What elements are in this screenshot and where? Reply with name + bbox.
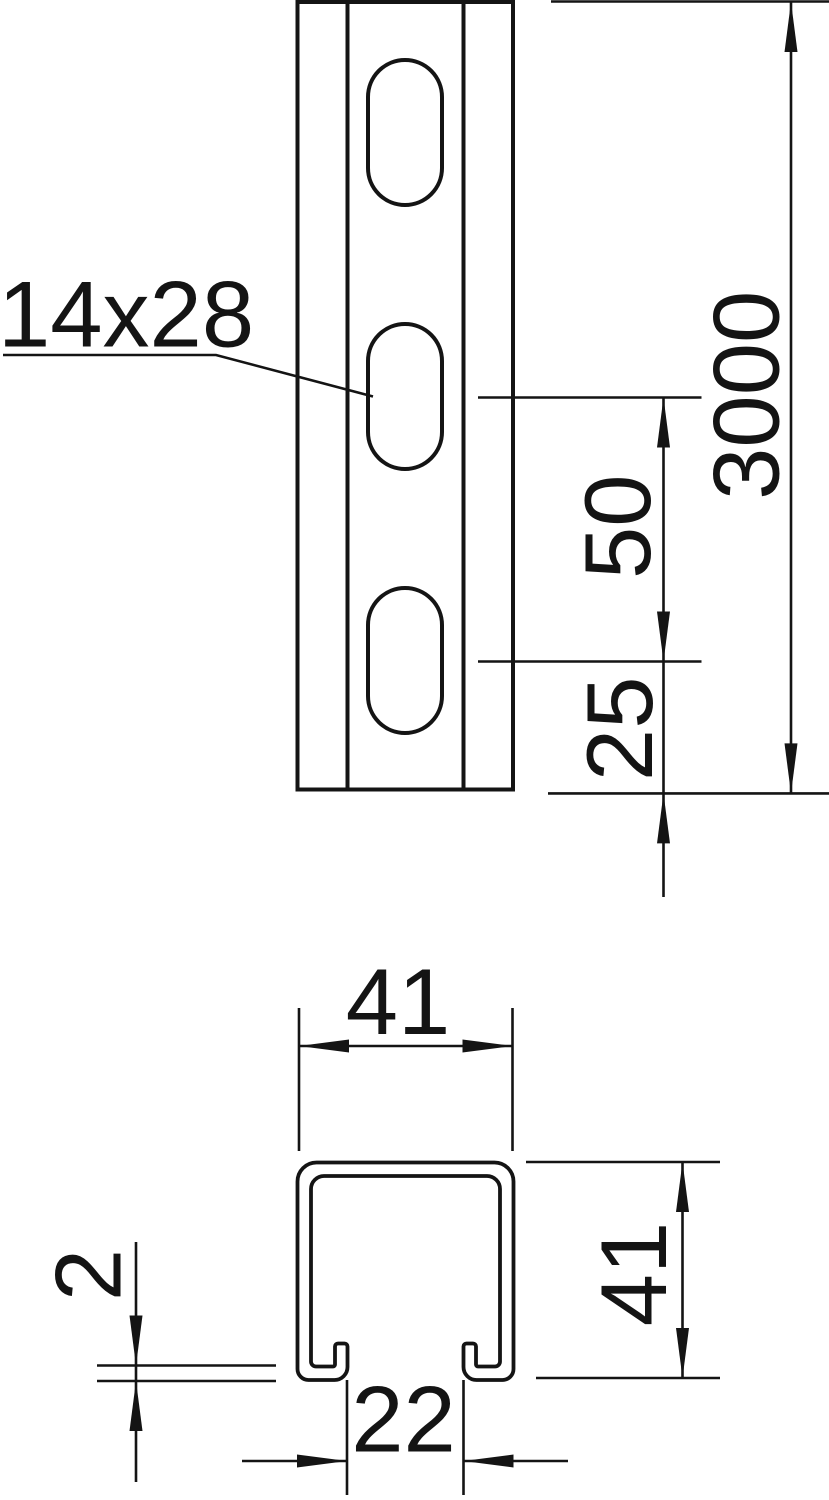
svg-text:3000: 3000 bbox=[694, 291, 799, 500]
svg-text:41: 41 bbox=[581, 1222, 686, 1327]
svg-text:14x28: 14x28 bbox=[0, 262, 254, 367]
svg-text:22: 22 bbox=[351, 1367, 456, 1472]
svg-text:25: 25 bbox=[567, 677, 672, 782]
svg-text:41: 41 bbox=[346, 949, 451, 1054]
svg-text:50: 50 bbox=[565, 474, 670, 579]
svg-text:2: 2 bbox=[36, 1249, 141, 1301]
